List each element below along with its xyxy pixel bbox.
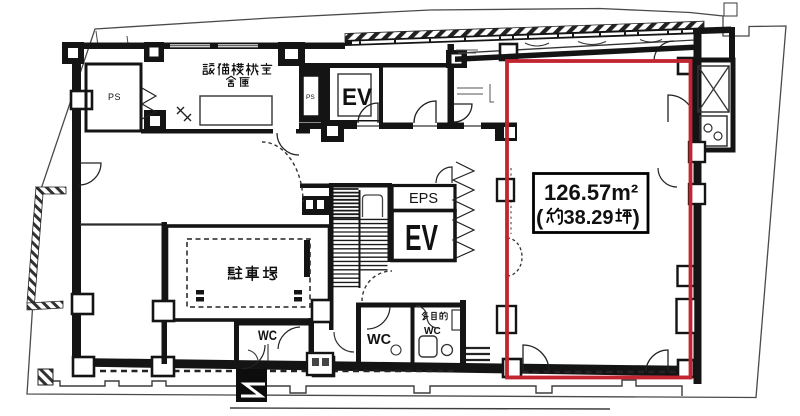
svg-text:EV: EV [405,217,438,258]
svg-text:126.57m²: 126.57m² [544,180,638,205]
svg-text:(: ( [536,205,544,230]
svg-text:PS: PS [108,92,121,102]
svg-text:PS: PS [306,94,315,101]
svg-text:WC: WC [258,328,277,343]
svg-text:): ) [633,205,640,230]
svg-text:EPS: EPS [409,191,438,207]
svg-text:WC: WC [367,332,392,348]
svg-text:EV: EV [342,84,372,111]
svg-text:38.29: 38.29 [564,207,614,229]
